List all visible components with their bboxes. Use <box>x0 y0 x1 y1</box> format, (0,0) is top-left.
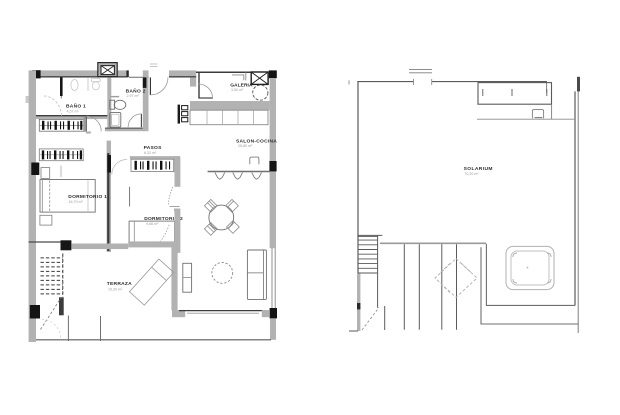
svg-text:9,66 m²: 9,66 m² <box>146 222 159 226</box>
svg-text:3,50 m²: 3,50 m² <box>231 88 244 92</box>
svg-text:16,70 m²: 16,70 m² <box>69 200 84 204</box>
svg-text:25,80 m²: 25,80 m² <box>238 144 253 148</box>
svg-text:6,32 m²: 6,32 m² <box>144 151 157 155</box>
svg-text:TERRAZA: TERRAZA <box>107 281 132 287</box>
svg-text:4,57 m²: 4,57 m² <box>67 109 80 113</box>
svg-text:2,97 m²: 2,97 m² <box>127 94 140 98</box>
svg-text:70,20 m²: 70,20 m² <box>464 172 479 176</box>
svg-text:19,30 m²: 19,30 m² <box>108 288 123 292</box>
